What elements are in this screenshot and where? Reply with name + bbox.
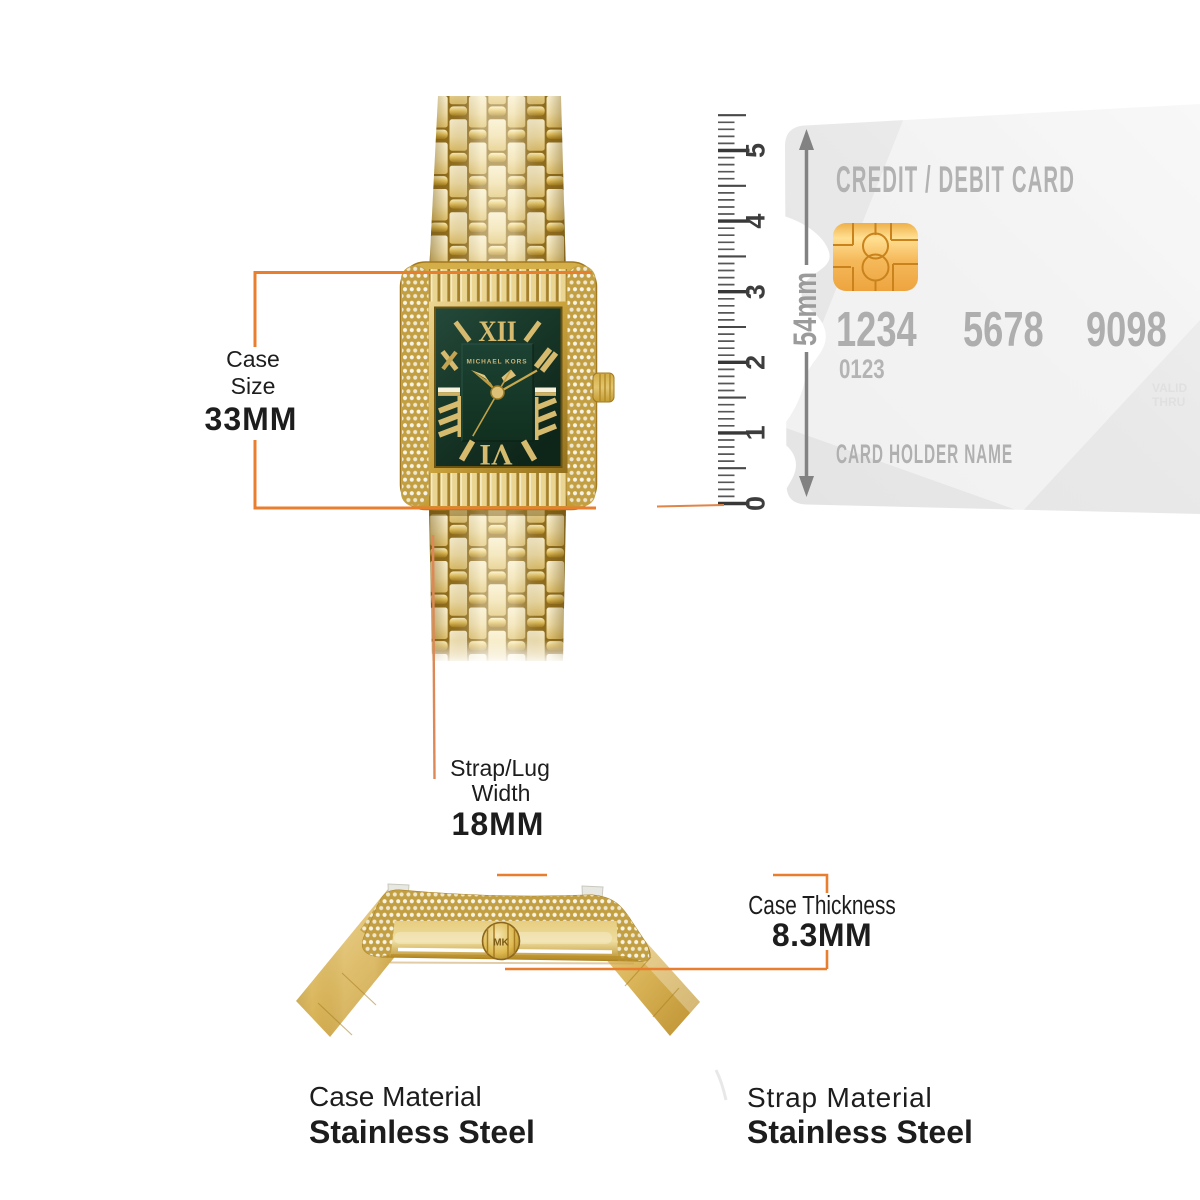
svg-text:33MM: 33MM [205,401,298,437]
svg-text:4: 4 [741,214,771,229]
svg-text:Case Material: Case Material [309,1081,482,1112]
svg-text:THRU: THRU [1152,395,1185,409]
svg-text:Stainless Steel: Stainless Steel [747,1114,973,1150]
svg-text:Case Thickness: Case Thickness [748,891,896,920]
svg-text:Width: Width [472,780,531,806]
svg-text:CREDIT / DEBIT CARD: CREDIT / DEBIT CARD [836,160,1075,201]
svg-text:Strap/Lug: Strap/Lug [450,755,550,781]
svg-text:Case: Case [226,346,280,372]
svg-text:5678: 5678 [963,303,1044,358]
svg-text:CARD HOLDER NAME: CARD HOLDER NAME [836,438,1013,469]
svg-text:18MM: 18MM [452,806,545,842]
svg-text:1234: 1234 [836,303,917,358]
svg-text:2: 2 [741,355,771,370]
svg-text:Stainless Steel: Stainless Steel [309,1114,535,1150]
svg-text:Strap Material: Strap Material [747,1082,933,1113]
svg-text:MK: MK [493,938,509,949]
svg-text:0123: 0123 [839,354,885,384]
svg-text:XII: XII [478,315,516,348]
svg-text:MICHAEL KORS: MICHAEL KORS [467,359,528,366]
svg-text:Size: Size [231,373,276,399]
svg-text:3: 3 [741,284,771,299]
svg-text:5: 5 [741,143,771,158]
svg-text:VALID: VALID [1152,381,1187,395]
svg-text:54mm: 54mm [788,272,823,346]
svg-text:9098: 9098 [1086,303,1167,358]
svg-text:0: 0 [741,496,771,511]
svg-text:8.3MM: 8.3MM [772,917,872,953]
svg-text:VI: VI [479,438,512,471]
svg-text:1: 1 [741,425,771,440]
